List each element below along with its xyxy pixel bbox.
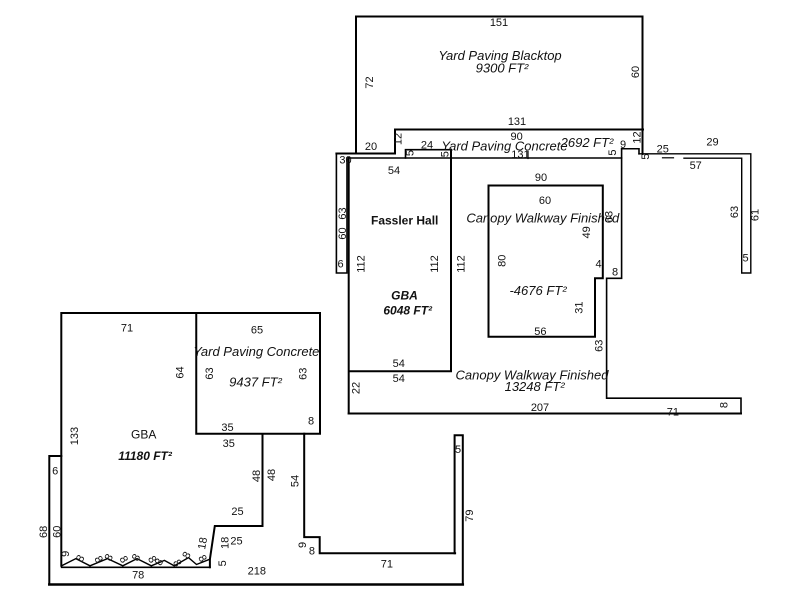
- svg-text:8: 8: [309, 545, 315, 557]
- svg-text:24: 24: [421, 140, 433, 152]
- svg-text:63: 63: [298, 368, 310, 380]
- svg-text:131: 131: [511, 149, 529, 161]
- svg-text:72: 72: [364, 76, 376, 88]
- svg-text:63: 63: [204, 367, 216, 379]
- svg-text:131: 131: [508, 116, 526, 128]
- svg-text:Canopy Walkway Finished: Canopy Walkway Finished: [466, 211, 620, 226]
- svg-text:8: 8: [719, 402, 731, 408]
- svg-text:71: 71: [667, 407, 679, 419]
- svg-text:112: 112: [356, 255, 368, 273]
- svg-text:22: 22: [350, 382, 362, 394]
- svg-text:4: 4: [595, 259, 601, 271]
- svg-text:48: 48: [251, 470, 263, 482]
- svg-text:20: 20: [365, 141, 377, 153]
- svg-text:48: 48: [266, 469, 278, 481]
- svg-text:-4676 FT²: -4676 FT²: [509, 283, 567, 298]
- svg-text:63: 63: [593, 340, 605, 352]
- svg-text:6: 6: [52, 466, 58, 478]
- svg-text:9: 9: [620, 139, 626, 151]
- svg-text:18: 18: [196, 536, 210, 550]
- svg-text:54: 54: [290, 475, 302, 487]
- svg-text:61: 61: [750, 209, 762, 221]
- svg-text:60: 60: [539, 195, 551, 207]
- svg-text:207: 207: [531, 402, 549, 414]
- svg-text:9437 FT²: 9437 FT²: [229, 375, 282, 390]
- svg-text:60: 60: [630, 66, 642, 78]
- svg-text:112: 112: [429, 255, 441, 273]
- svg-text:29: 29: [706, 137, 718, 149]
- svg-text:151: 151: [490, 17, 508, 29]
- svg-text:5: 5: [455, 444, 461, 456]
- svg-text:63: 63: [729, 206, 741, 218]
- svg-text:12: 12: [632, 131, 644, 143]
- svg-text:54: 54: [388, 165, 400, 177]
- svg-text:112: 112: [456, 255, 468, 273]
- svg-text:78: 78: [132, 570, 144, 582]
- svg-text:64: 64: [175, 366, 187, 378]
- svg-text:79: 79: [464, 509, 476, 521]
- svg-text:49: 49: [581, 226, 593, 238]
- svg-text:60: 60: [52, 526, 64, 538]
- svg-text:35: 35: [221, 422, 233, 434]
- svg-text:80: 80: [497, 255, 509, 267]
- svg-text:68: 68: [38, 526, 50, 538]
- svg-text:63: 63: [337, 207, 349, 219]
- svg-text:Fassler Hall: Fassler Hall: [371, 214, 438, 228]
- svg-text:30: 30: [339, 155, 351, 167]
- svg-text:218: 218: [248, 566, 266, 578]
- svg-text:9: 9: [60, 551, 72, 557]
- svg-text:25: 25: [230, 536, 242, 548]
- svg-text:8: 8: [308, 416, 314, 428]
- svg-text:133: 133: [69, 427, 81, 445]
- svg-text:57: 57: [690, 160, 702, 172]
- svg-text:5: 5: [742, 252, 748, 264]
- svg-text:2692 FT²: 2692 FT²: [560, 135, 614, 150]
- svg-text:9300 FT²: 9300 FT²: [476, 60, 529, 75]
- svg-text:5: 5: [640, 153, 652, 159]
- svg-text:5: 5: [607, 149, 619, 155]
- svg-text:56: 56: [534, 326, 546, 338]
- svg-text:Yard Paving Concrete: Yard Paving Concrete: [193, 344, 319, 359]
- svg-text:25: 25: [657, 144, 669, 156]
- svg-text:71: 71: [121, 323, 133, 335]
- svg-text:GBA: GBA: [391, 289, 418, 303]
- svg-text:12: 12: [393, 133, 405, 145]
- svg-text:GBA: GBA: [131, 428, 156, 442]
- svg-text:54: 54: [393, 373, 405, 385]
- svg-text:31: 31: [574, 301, 586, 313]
- svg-text:9: 9: [297, 542, 309, 548]
- svg-text:5: 5: [439, 151, 451, 157]
- svg-text:11180 FT²: 11180 FT²: [118, 449, 173, 463]
- svg-text:65: 65: [251, 325, 263, 337]
- svg-text:54: 54: [393, 358, 405, 370]
- svg-text:8: 8: [612, 266, 618, 278]
- svg-text:6048 FT²: 6048 FT²: [383, 304, 433, 318]
- svg-text:6: 6: [337, 259, 343, 271]
- svg-text:5: 5: [217, 560, 229, 566]
- svg-text:25: 25: [231, 506, 243, 518]
- svg-text:35: 35: [223, 438, 235, 450]
- svg-text:5: 5: [405, 150, 417, 156]
- svg-text:90: 90: [535, 172, 547, 184]
- svg-text:13248 FT²: 13248 FT²: [505, 379, 566, 394]
- svg-text:71: 71: [381, 559, 393, 571]
- svg-text:63: 63: [604, 211, 616, 223]
- svg-text:Yard Paving Concrete: Yard Paving Concrete: [441, 139, 567, 154]
- svg-text:60: 60: [337, 227, 349, 239]
